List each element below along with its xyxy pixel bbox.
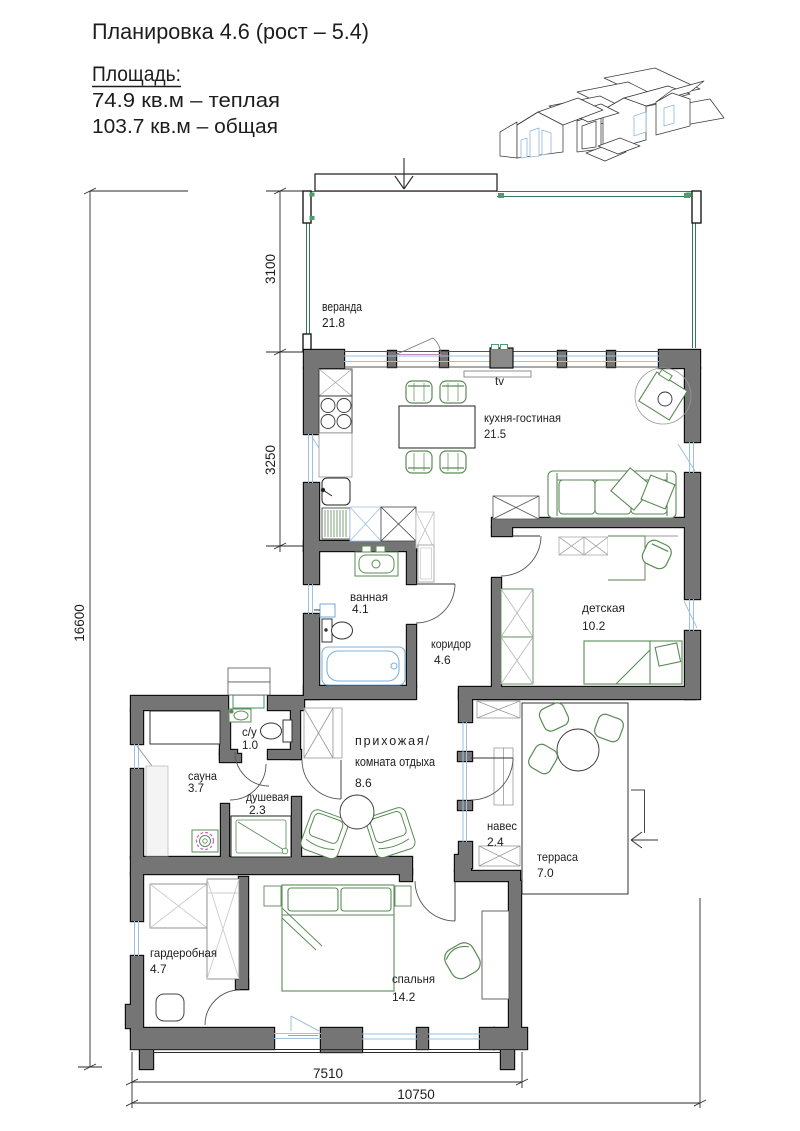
svg-text:tv: tv <box>495 376 504 388</box>
svg-text:21.8: 21.8 <box>322 315 345 330</box>
svg-text:16600: 16600 <box>72 604 87 642</box>
svg-text:7.0: 7.0 <box>537 866 554 880</box>
svg-text:10.2: 10.2 <box>582 619 606 633</box>
svg-text:8.6: 8.6 <box>355 776 372 790</box>
svg-text:74.9 кв.м – теплая: 74.9 кв.м – теплая <box>92 90 280 112</box>
svg-text:душевая: душевая <box>246 790 289 804</box>
svg-text:4.7: 4.7 <box>150 962 167 976</box>
svg-text:прихожая/: прихожая/ <box>355 734 430 748</box>
svg-text:кухня-гостиная: кухня-гостиная <box>484 411 561 425</box>
svg-text:спальня: спальня <box>392 972 435 986</box>
svg-text:103.7 кв.м – общая: 103.7 кв.м – общая <box>92 116 278 138</box>
svg-text:14.2: 14.2 <box>392 990 416 1004</box>
svg-text:3100: 3100 <box>263 254 278 284</box>
svg-text:7510: 7510 <box>313 1066 343 1081</box>
svg-text:10750: 10750 <box>397 1087 435 1102</box>
svg-text:1.0: 1.0 <box>242 740 258 752</box>
svg-text:коридор: коридор <box>431 637 471 651</box>
svg-text:навес: навес <box>487 819 517 833</box>
svg-text:4.1: 4.1 <box>352 602 369 616</box>
svg-text:Планировка 4.6 (рост – 5.4): Планировка 4.6 (рост – 5.4) <box>92 19 369 44</box>
svg-text:детская: детская <box>582 601 625 615</box>
svg-text:2.3: 2.3 <box>249 803 266 817</box>
svg-text:гардеробная: гардеробная <box>150 946 217 960</box>
svg-text:2.4: 2.4 <box>487 835 504 849</box>
svg-text:3.7: 3.7 <box>188 783 204 795</box>
svg-text:Площадь:: Площадь: <box>92 63 181 86</box>
svg-text:комната отдыха: комната отдыха <box>355 755 435 769</box>
svg-text:4.6: 4.6 <box>434 653 451 667</box>
svg-text:веранда: веранда <box>322 299 363 314</box>
svg-text:21.5: 21.5 <box>484 427 506 441</box>
svg-text:с/у: с/у <box>242 727 257 739</box>
svg-text:терраса: терраса <box>537 850 578 864</box>
svg-text:3250: 3250 <box>263 445 278 475</box>
svg-text:сауна: сауна <box>188 771 218 783</box>
